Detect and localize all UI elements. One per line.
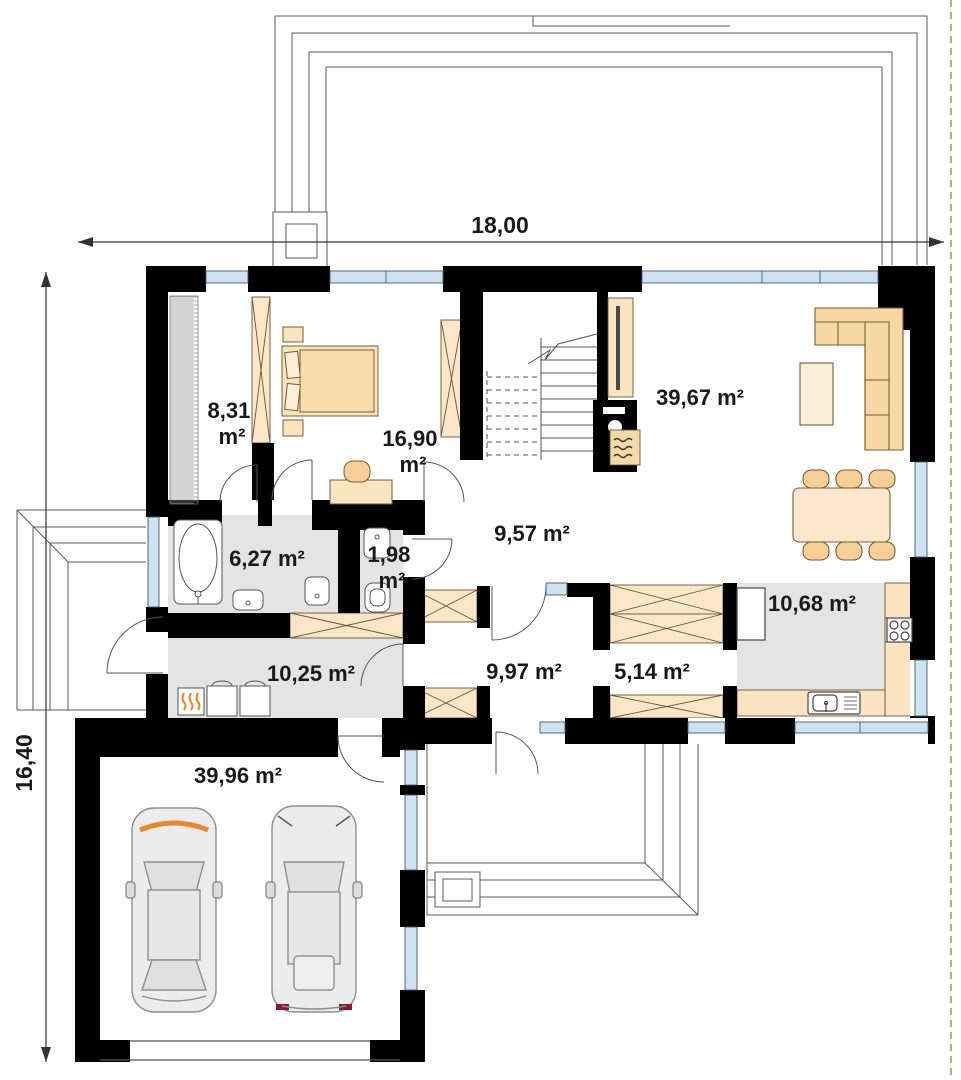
kitchen-counter-right — [885, 583, 913, 716]
desk-chair — [344, 461, 370, 482]
room-label-bathroom: 6,27m² — [229, 546, 305, 571]
sink — [305, 577, 329, 605]
room-label-hall-upper: 9,57m² — [494, 521, 570, 546]
window — [400, 927, 425, 990]
bedroom-furniture — [282, 327, 392, 504]
door-garage — [338, 736, 384, 782]
door-wc — [412, 539, 452, 579]
internal-window — [546, 583, 567, 595]
dimension-width-label: 18,00 — [471, 212, 529, 238]
car-mirror — [213, 882, 222, 898]
stairs — [487, 334, 597, 460]
nightstand — [283, 420, 303, 436]
room-label-wardrobe: 8,31 m² — [208, 398, 257, 449]
window — [400, 795, 425, 870]
roof-outline — [273, 16, 927, 268]
window — [540, 718, 565, 744]
room-label-living-room: 39,67m² — [656, 385, 744, 410]
room-label-garage: 39,96m² — [194, 763, 282, 788]
tv-cabinet — [608, 298, 633, 397]
chair — [836, 470, 862, 488]
dining-set — [793, 470, 895, 560]
dimension-height-label: 16,40 — [11, 734, 37, 792]
porch-outline — [17, 510, 146, 710]
chair — [836, 542, 862, 560]
window — [795, 718, 928, 744]
room-label-kitchen: 10,68m² — [768, 591, 856, 616]
cooktop-icon — [887, 618, 912, 642]
cabinet-utility — [290, 613, 403, 638]
hearth-icon — [610, 430, 640, 465]
living-room-furniture — [793, 308, 903, 560]
cars — [126, 806, 362, 1012]
washing-machine — [207, 681, 237, 716]
wardrobe-corridor-top — [610, 585, 723, 643]
window — [330, 266, 443, 292]
chair — [803, 470, 829, 488]
window — [206, 266, 248, 292]
car-mirror — [353, 882, 362, 898]
bed — [282, 346, 378, 416]
window — [642, 266, 878, 292]
car — [126, 808, 222, 1012]
room-label-bedroom: 16,90 m² — [382, 426, 443, 477]
boiler-icon — [178, 688, 204, 715]
closet-shelves — [170, 296, 198, 504]
dimension-line-horizontal: 18,00 — [78, 212, 944, 247]
dining-table — [793, 488, 890, 542]
floor-plan-page: 18,00 16,40 — [0, 0, 961, 1080]
wardrobe-bedroom — [441, 320, 462, 437]
window — [688, 718, 725, 744]
room-label-hall-lower: 9,97m² — [486, 659, 562, 684]
terrace-outline — [427, 744, 698, 915]
sink — [233, 590, 263, 610]
window — [400, 750, 425, 785]
car-mirror — [266, 882, 275, 898]
chair — [869, 470, 895, 488]
tv-icon — [616, 306, 620, 390]
kitchen-sink — [808, 692, 860, 714]
chair — [869, 542, 895, 560]
wardrobe-corridor-bottom — [610, 695, 723, 718]
window — [910, 462, 935, 557]
bathtub — [174, 520, 222, 604]
fridge — [737, 588, 765, 640]
door-bedroom — [424, 462, 464, 502]
room-label-corridor: 5,14m² — [614, 659, 690, 684]
car-mirror — [126, 882, 135, 898]
door-closet — [220, 465, 257, 502]
desk — [330, 461, 392, 504]
window — [910, 660, 935, 716]
window — [146, 517, 168, 607]
nightstand — [283, 327, 303, 342]
door-bathroom — [272, 460, 312, 500]
garage-door — [100, 1041, 400, 1060]
room-label-utility: 10,25m² — [267, 661, 355, 686]
dryer — [240, 681, 270, 716]
chair — [803, 542, 829, 560]
coffee-table — [800, 363, 833, 425]
door-terrace — [496, 732, 538, 774]
car — [266, 806, 362, 1012]
floor-plan-drawing: 18,00 16,40 — [0, 0, 961, 1080]
door-hall — [492, 586, 546, 640]
